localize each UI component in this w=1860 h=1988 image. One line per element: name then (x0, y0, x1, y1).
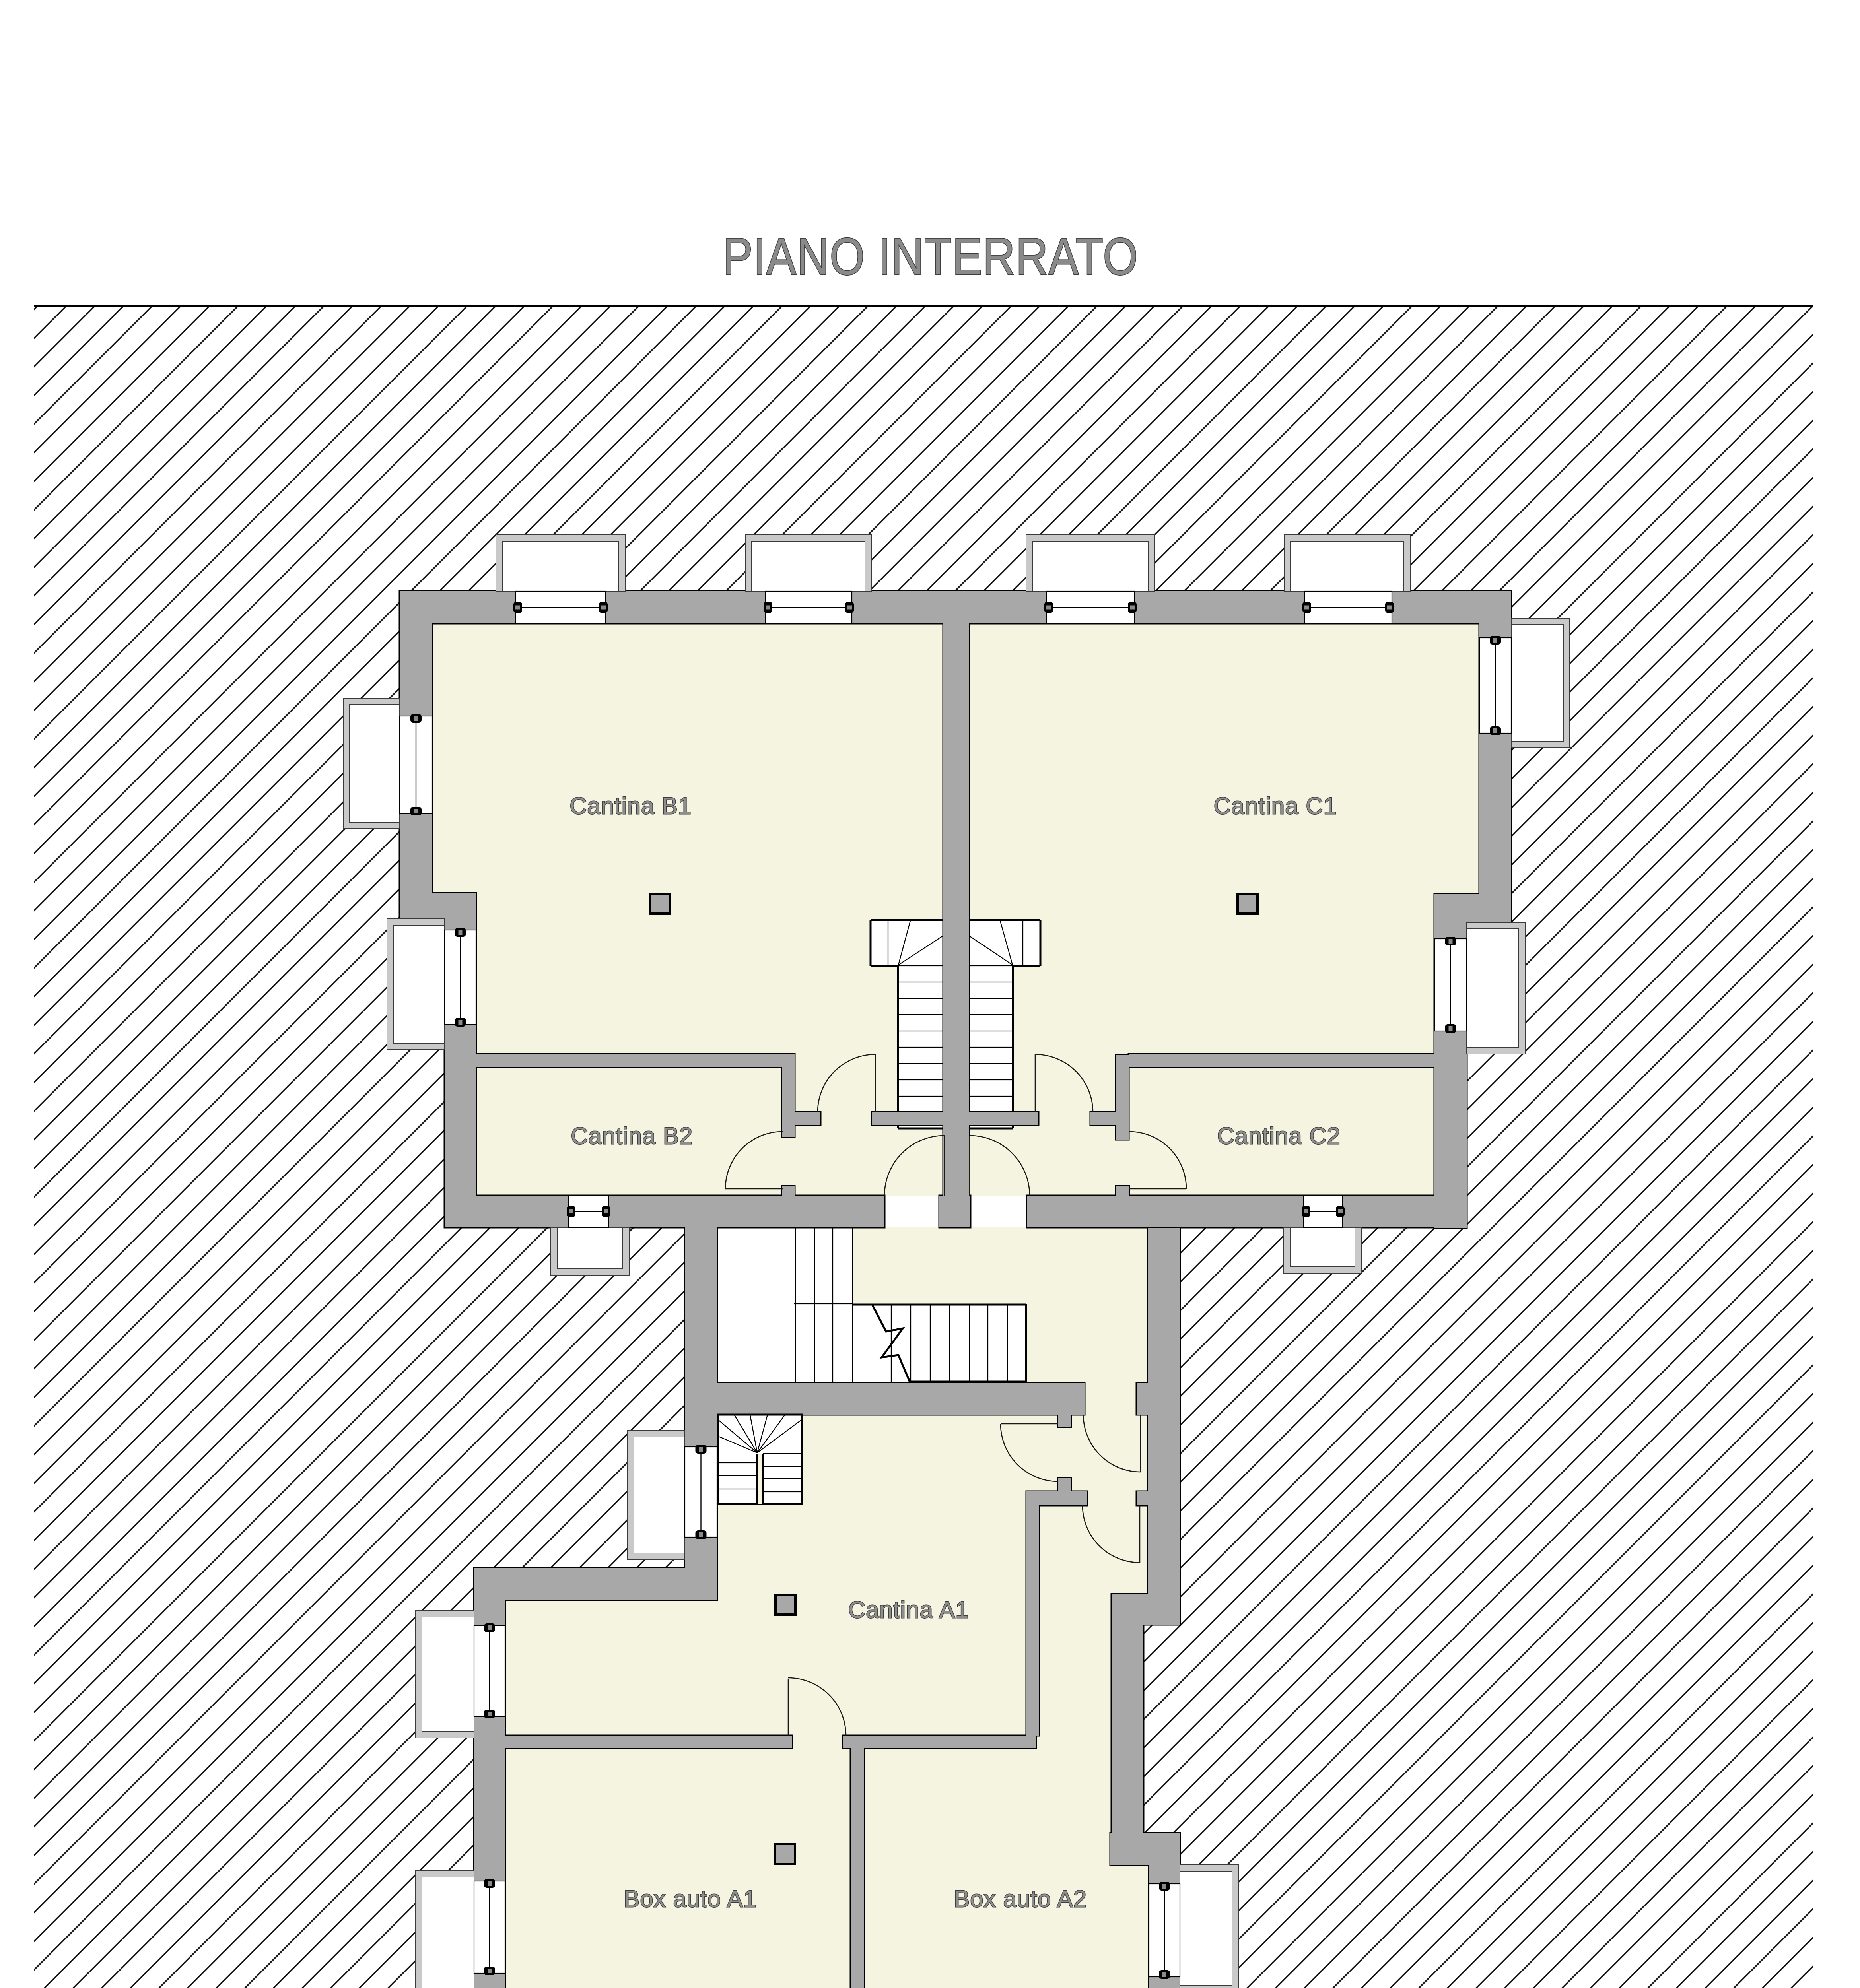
svg-text:PIANO INTERRATO: PIANO INTERRATO (723, 227, 1139, 285)
svg-text:Cantina B1: Cantina B1 (570, 793, 692, 819)
svg-text:Cantina B2: Cantina B2 (571, 1123, 693, 1149)
svg-text:Box auto A1: Box auto A1 (624, 1886, 757, 1912)
svg-text:Box auto A2: Box auto A2 (954, 1886, 1087, 1912)
svg-text:Cantina A1: Cantina A1 (848, 1597, 969, 1623)
svg-text:Cantina C1: Cantina C1 (1214, 793, 1337, 819)
svg-text:Cantina C2: Cantina C2 (1217, 1123, 1341, 1149)
